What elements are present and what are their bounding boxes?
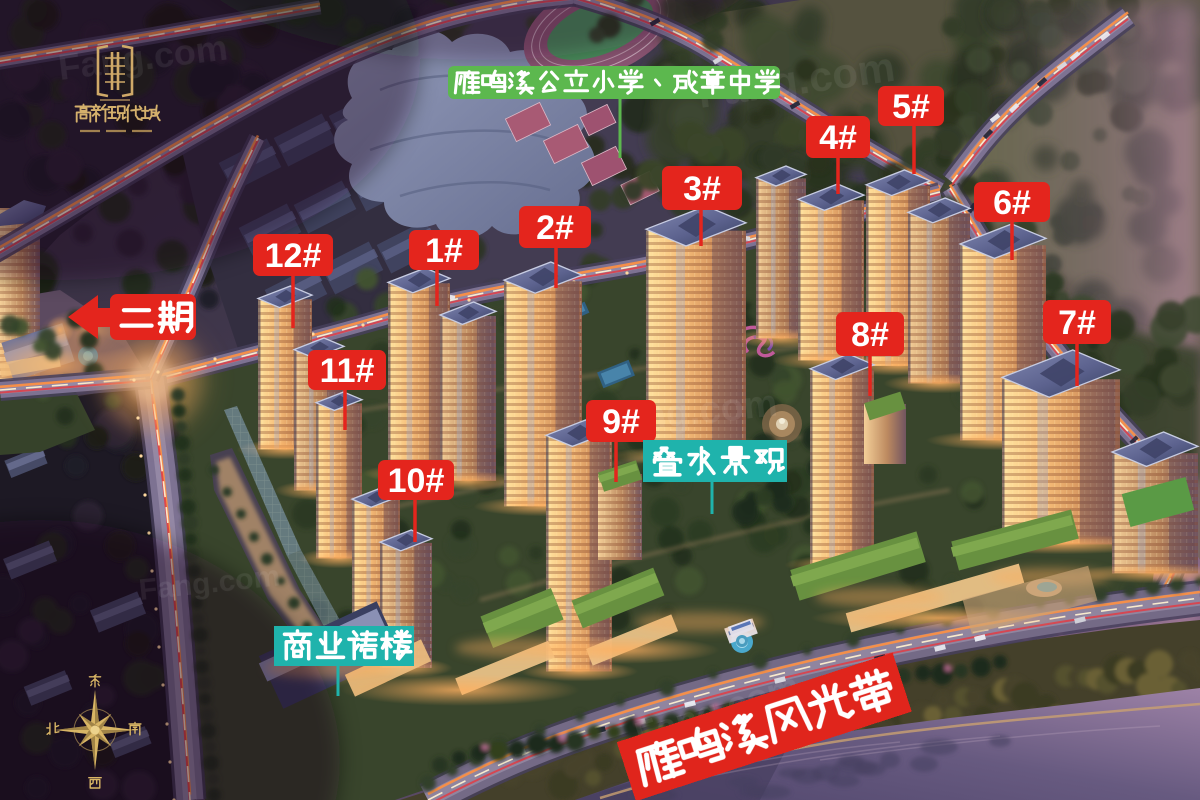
svg-text:3#: 3# bbox=[683, 170, 721, 208]
svg-text:9#: 9# bbox=[602, 403, 640, 441]
svg-text:1#: 1# bbox=[425, 232, 463, 270]
svg-text:8#: 8# bbox=[851, 316, 889, 354]
svg-text:4#: 4# bbox=[819, 119, 857, 157]
svg-text:5#: 5# bbox=[892, 88, 930, 126]
svg-text:7#: 7# bbox=[1058, 304, 1096, 342]
svg-text:12#: 12# bbox=[265, 237, 322, 275]
svg-text:6#: 6# bbox=[993, 184, 1031, 222]
svg-text:2#: 2# bbox=[536, 209, 574, 247]
svg-text:11#: 11# bbox=[320, 352, 375, 390]
svg-text:10#: 10# bbox=[388, 462, 445, 500]
